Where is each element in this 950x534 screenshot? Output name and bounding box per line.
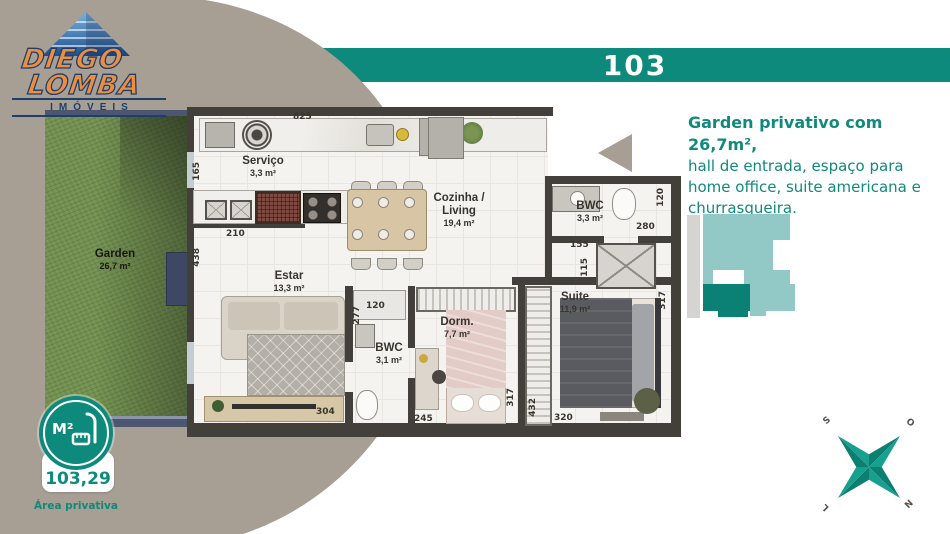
plant — [212, 400, 224, 412]
dimension-label: 438 — [192, 248, 202, 267]
wall-segment — [518, 285, 525, 425]
plate — [352, 197, 363, 208]
dining-chair — [403, 258, 423, 270]
toilet — [356, 390, 378, 420]
pillow — [478, 394, 501, 412]
room-name: BWC — [564, 200, 616, 213]
room-area: 26,7 m² — [84, 261, 146, 271]
service-shaft — [596, 243, 656, 289]
room-area: 3,1 m² — [364, 355, 414, 365]
pillow — [451, 394, 474, 412]
dimension-label: 432 — [528, 398, 538, 417]
wall-segment — [408, 286, 415, 348]
plate — [404, 229, 415, 240]
room-name: Cozinha / Living — [420, 192, 498, 218]
dimension-label: 155 — [570, 240, 589, 250]
room-name: Serviço — [230, 155, 296, 168]
room-area: 7,7 m² — [430, 329, 484, 339]
bench — [600, 412, 644, 421]
wall-segment — [638, 236, 676, 243]
hall-sideboard — [428, 117, 464, 159]
room-name: Garden — [84, 248, 146, 261]
plant — [461, 122, 483, 144]
laundry-tub — [205, 122, 235, 148]
dimension-label: 304 — [316, 407, 335, 417]
dimension-label: 115 — [580, 258, 590, 277]
dimension-label: 120 — [656, 188, 666, 207]
cabinet — [205, 200, 227, 220]
dimension-label: 277 — [352, 306, 362, 325]
wall-segment — [545, 176, 676, 184]
brand-name-line2: LOMBA — [26, 70, 143, 101]
wardrobe — [416, 287, 516, 312]
stove — [303, 193, 341, 223]
tv — [232, 404, 316, 409]
sofa-cushion — [284, 302, 338, 330]
brand-logo: DIEGO LOMBA IMÓVEIS — [12, 10, 162, 120]
private-area-value: 103,29 — [45, 469, 111, 492]
barbecue-grill — [255, 191, 301, 224]
room-area: 3,3 m² — [564, 213, 616, 223]
room-area: 11,9 m² — [545, 304, 605, 314]
desk-chair — [432, 370, 446, 384]
plate — [378, 197, 389, 208]
wall-segment — [187, 423, 681, 437]
room-area: 19,4 m² — [420, 218, 498, 228]
dimension-label: 210 — [226, 229, 245, 239]
area-rug — [247, 334, 345, 396]
wall-segment — [345, 392, 353, 425]
room-name: Estar — [258, 270, 320, 283]
dimension-label: 165 — [192, 162, 202, 181]
dimension-label: 317 — [506, 388, 516, 407]
cabinet — [230, 200, 252, 220]
pillow — [632, 304, 654, 402]
kitchen-sink — [366, 124, 394, 146]
wall-segment — [545, 176, 552, 282]
faucet-detail — [396, 128, 409, 141]
ruler-icon — [71, 410, 105, 450]
glass-door — [187, 342, 194, 384]
dimension-label: 120 — [366, 301, 385, 311]
area-badge: M² — [39, 396, 113, 470]
private-area-caption: Área privativa — [16, 500, 136, 512]
room-name: BWC — [364, 342, 414, 355]
dimension-label: 280 — [636, 222, 655, 232]
room-name: Dorm. — [430, 316, 484, 329]
room-area: 3,3 m² — [230, 168, 296, 178]
dimension-label: 317 — [658, 291, 668, 310]
dimension-label: 245 — [414, 414, 433, 424]
flyer-canvas: 103 Garden privativo com 26,7m², hall de… — [0, 0, 950, 534]
plate — [352, 229, 363, 240]
wall-segment — [671, 176, 681, 428]
wall-segment — [187, 107, 553, 116]
lamp — [419, 354, 428, 363]
plate — [404, 197, 415, 208]
washing-machine — [242, 120, 272, 150]
room-name: Suite — [545, 291, 605, 304]
plate — [378, 229, 389, 240]
dining-chair — [377, 258, 397, 270]
pergola — [166, 252, 188, 306]
dimension-label: 825 — [293, 112, 312, 122]
entrance-arrow-icon — [598, 134, 632, 172]
sofa-cushion — [228, 302, 280, 330]
dining-chair — [351, 258, 371, 270]
room-area: 13,3 m² — [258, 283, 320, 293]
dimension-label: 320 — [554, 413, 573, 423]
pouf — [634, 388, 660, 414]
brand-tagline: IMÓVEIS — [12, 98, 166, 117]
